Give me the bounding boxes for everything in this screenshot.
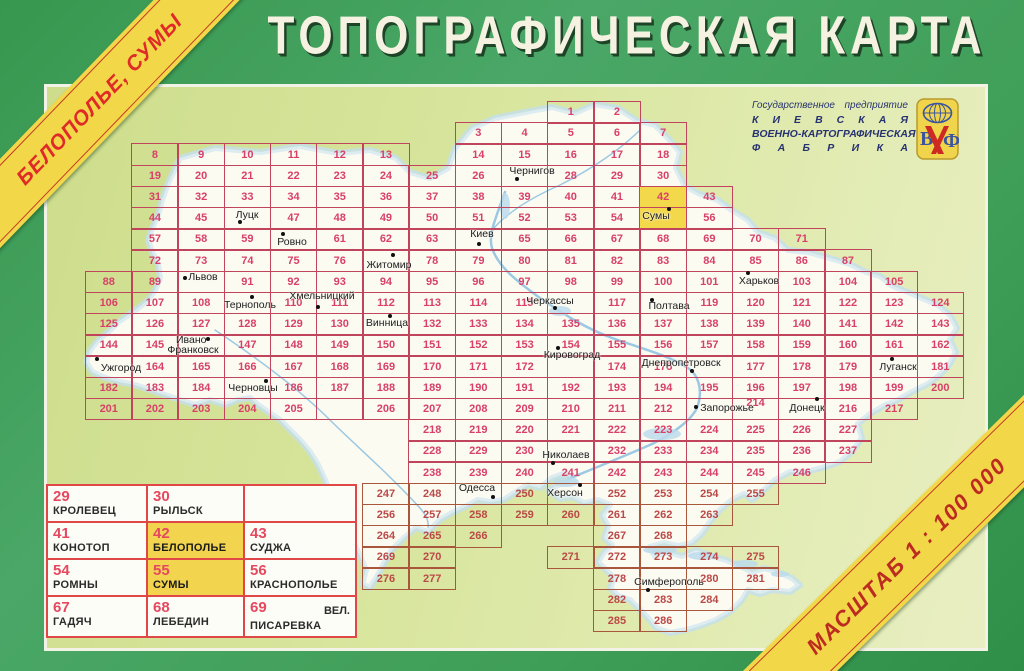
city-dot	[515, 177, 519, 181]
sheet-cell-11: 11	[270, 143, 318, 166]
sheet-cell-59: 59	[224, 228, 272, 251]
sheet-cell-242: 242	[593, 461, 641, 484]
sheet-cell-50: 50	[408, 207, 456, 230]
sheet-cell-49: 49	[362, 207, 410, 230]
sheet-cell-236: 236	[778, 440, 826, 463]
sheet-cell-113: 113	[408, 292, 456, 315]
sheet-cell-245: 245	[732, 461, 780, 484]
sheet-cell-264: 264	[362, 525, 410, 548]
legend-cell-41: 41КОНОТОП	[47, 522, 147, 559]
sheet-cell-74: 74	[224, 249, 272, 272]
sheet-cell-61: 61	[316, 228, 364, 251]
city-dot	[578, 483, 582, 487]
sheet-cell-270: 270	[408, 546, 456, 569]
sheet-cell-235: 235	[732, 440, 780, 463]
city-label: Херсон	[547, 488, 583, 498]
sheet-cell-194: 194	[639, 377, 687, 400]
sheet-cell-286: 286	[639, 610, 687, 633]
sheet-cell-275: 275	[732, 546, 780, 569]
city-dot	[250, 295, 254, 299]
sheet-cell-157: 157	[686, 334, 734, 357]
sheet-cell-208: 208	[455, 398, 503, 421]
sheet-cell-234: 234	[686, 440, 734, 463]
sheet-cell-empty	[316, 398, 364, 421]
sheet-cell-228: 228	[408, 440, 456, 463]
sheet-cell-198: 198	[824, 377, 872, 400]
sheet-cell-201: 201	[85, 398, 133, 421]
sheet-cell-276: 276	[362, 567, 410, 590]
sheet-cell-177: 177	[732, 355, 780, 378]
city-label: Киев	[470, 229, 493, 239]
sheet-cell-203: 203	[177, 398, 225, 421]
sheet-cell-143: 143	[917, 313, 965, 336]
sheet-cell-31: 31	[131, 186, 179, 209]
sheet-cell-7: 7	[639, 122, 687, 145]
sheet-cell-261: 261	[593, 504, 641, 527]
sheet-cell-103: 103	[778, 271, 826, 294]
sheet-cell-6: 6	[593, 122, 641, 145]
sheet-cell-58: 58	[177, 228, 225, 251]
sheet-cell-138: 138	[686, 313, 734, 336]
sheet-cell-253: 253	[639, 483, 687, 506]
sheet-cell-256: 256	[362, 504, 410, 527]
sheet-cell-204: 204	[224, 398, 272, 421]
sheet-cell-237: 237	[824, 440, 872, 463]
city-label: Львов	[188, 272, 217, 282]
sheet-cell-72: 72	[131, 249, 179, 272]
sheet-cell-29: 29	[593, 165, 641, 188]
city-label: Ровно	[277, 237, 307, 247]
sheet-cell-191: 191	[501, 377, 549, 400]
sheet-cell-100: 100	[639, 271, 687, 294]
sheet-cell-167: 167	[270, 355, 318, 378]
sheet-cell-99: 99	[593, 271, 641, 294]
sheet-cell-188: 188	[362, 377, 410, 400]
sheet-cell-119: 119	[686, 292, 734, 315]
sheet-cell-223: 223	[639, 419, 687, 442]
sheet-cell-238: 238	[408, 461, 456, 484]
sheet-cell-63: 63	[408, 228, 456, 251]
sheet-cell-105: 105	[870, 271, 918, 294]
map-cover-page: 1234567891011121314151617181920212223242…	[0, 0, 1024, 671]
sheet-cell-137: 137	[639, 313, 687, 336]
sheet-cell-151: 151	[408, 334, 456, 357]
city-dot	[650, 298, 654, 302]
sheet-cell-248: 248	[408, 483, 456, 506]
city-label: Хмельницкий	[289, 291, 354, 301]
city-dot	[388, 314, 392, 318]
publisher-line-2: К И Е В С К А Я	[752, 113, 908, 127]
sheet-cell-284: 284	[686, 589, 734, 612]
sheet-cell-97: 97	[501, 271, 549, 294]
sheet-cell-123: 123	[870, 292, 918, 315]
sheet-cell-23: 23	[316, 165, 364, 188]
sheet-cell-12: 12	[316, 143, 364, 166]
sheet-cell-179: 179	[824, 355, 872, 378]
city-label: Ивано- Франковск	[167, 335, 218, 355]
legend-cell-68: 68ЛЕБЕДИН	[147, 596, 244, 637]
sheet-cell-104: 104	[824, 271, 872, 294]
sheet-cell-134: 134	[501, 313, 549, 336]
sheet-cell-132: 132	[408, 313, 456, 336]
sheet-cell-156: 156	[639, 334, 687, 357]
sheet-cell-259: 259	[501, 504, 549, 527]
sheet-cell-133: 133	[455, 313, 503, 336]
sheet-cell-153: 153	[501, 334, 549, 357]
sheet-cell-36: 36	[362, 186, 410, 209]
sheet-cell-205: 205	[270, 398, 318, 421]
publisher-block: Государственное предприятие К И Е В С К …	[752, 99, 908, 155]
sheet-cell-217: 217	[870, 398, 918, 421]
city-label: Тернополь	[224, 300, 276, 310]
sheet-cell-4: 4	[501, 122, 549, 145]
sheet-cell-24: 24	[362, 165, 410, 188]
sheet-cell-268: 268	[639, 525, 687, 548]
sheet-cell-216: 216	[824, 398, 872, 421]
sheet-cell-112: 112	[362, 292, 410, 315]
sheet-cell-35: 35	[316, 186, 364, 209]
sheet-cell-258: 258	[455, 504, 503, 527]
sheet-cell-32: 32	[177, 186, 225, 209]
sheet-cell-161: 161	[870, 334, 918, 357]
sheet-cell-3: 3	[455, 122, 503, 145]
factory-logo-icon: В Ф	[916, 98, 959, 160]
sheet-cell-246: 246	[778, 461, 826, 484]
city-label: Днепропетровск	[641, 358, 720, 368]
sheet-cell-108: 108	[177, 292, 225, 315]
city-dot	[553, 306, 557, 310]
sheet-cell-54: 54	[593, 207, 641, 230]
sheet-cell-10: 10	[224, 143, 272, 166]
city-label: Винница	[366, 318, 408, 328]
sheet-cell-47: 47	[270, 207, 318, 230]
sheet-cell-91: 91	[224, 271, 272, 294]
sheet-cell-43: 43	[686, 186, 734, 209]
sheet-cell-266: 266	[455, 525, 503, 548]
city-label: Николаев	[542, 450, 589, 460]
city-label: Полтава	[648, 301, 689, 311]
sheet-cell-244: 244	[686, 461, 734, 484]
sheet-cell-252: 252	[593, 483, 641, 506]
sheet-cell-224: 224	[686, 419, 734, 442]
sheet-cell-37: 37	[408, 186, 456, 209]
sheet-cell-125: 125	[85, 313, 133, 336]
sheet-cell-210: 210	[547, 398, 595, 421]
sheet-cell-124: 124	[917, 292, 965, 315]
sheet-cell-187: 187	[316, 377, 364, 400]
sheet-cell-66: 66	[547, 228, 595, 251]
legend-cell-69: 69ВЕЛ.ПИСАРЕВКА	[244, 596, 356, 637]
city-dot	[391, 253, 395, 257]
city-label: Кировоград	[544, 350, 601, 360]
sheet-cell-169: 169	[362, 355, 410, 378]
sheet-cell-1: 1	[547, 101, 595, 124]
sheet-cell-144: 144	[85, 334, 133, 357]
sheet-cell-218: 218	[408, 419, 456, 442]
sheet-cell-52: 52	[501, 207, 549, 230]
sheet-cell-17: 17	[593, 143, 641, 166]
sheet-cell-239: 239	[455, 461, 503, 484]
sheet-cell-206: 206	[362, 398, 410, 421]
city-label: Ужгород	[101, 363, 141, 373]
sheet-cell-86: 86	[778, 249, 826, 272]
sheet-cell-44: 44	[131, 207, 179, 230]
sheet-cell-255: 255	[732, 483, 780, 506]
sheet-cell-85: 85	[732, 249, 780, 272]
sheet-cell-56: 56	[686, 207, 734, 230]
sheet-cell-171: 171	[455, 355, 503, 378]
sheet-cell-183: 183	[131, 377, 179, 400]
city-label: Одесса	[459, 483, 495, 493]
city-dot	[746, 271, 750, 275]
sheet-cell-274: 274	[686, 546, 734, 569]
sheet-cell-212: 212	[639, 398, 687, 421]
sheet-cell-260: 260	[547, 504, 595, 527]
city-dot	[667, 207, 671, 211]
sheet-cell-207: 207	[408, 398, 456, 421]
sheet-cell-39: 39	[501, 186, 549, 209]
sheet-cell-241: 241	[547, 461, 595, 484]
sheet-cell-142: 142	[870, 313, 918, 336]
sheet-cell-73: 73	[177, 249, 225, 272]
sheet-cell-114: 114	[455, 292, 503, 315]
sheet-cell-22: 22	[270, 165, 318, 188]
sheet-cell-197: 197	[778, 377, 826, 400]
sheet-cell-271: 271	[547, 546, 595, 569]
sheet-cell-45: 45	[177, 207, 225, 230]
sheet-cell-9: 9	[177, 143, 225, 166]
city-dot	[694, 405, 698, 409]
sheet-cell-158: 158	[732, 334, 780, 357]
sheet-cell-199: 199	[870, 377, 918, 400]
sheet-cell-62: 62	[362, 228, 410, 251]
city-label: Житомир	[366, 260, 411, 270]
sheet-cell-193: 193	[593, 377, 641, 400]
sheet-cell-263: 263	[686, 504, 734, 527]
sheet-cell-136: 136	[593, 313, 641, 336]
sheet-cell-269: 269	[362, 546, 410, 569]
sheet-cell-165: 165	[177, 355, 225, 378]
sheet-cell-79: 79	[455, 249, 503, 272]
city-label: Запорожье	[700, 403, 754, 413]
sheet-cell-94: 94	[362, 271, 410, 294]
sheet-cell-172: 172	[501, 355, 549, 378]
city-dot	[890, 357, 894, 361]
sheet-cell-226: 226	[778, 419, 826, 442]
sheet-cell-148: 148	[270, 334, 318, 357]
city-dot	[477, 242, 481, 246]
sheet-cell-107: 107	[131, 292, 179, 315]
sheet-cell-209: 209	[501, 398, 549, 421]
sheet-cell-18: 18	[639, 143, 687, 166]
publisher-line-1: Государственное предприятие	[752, 99, 908, 113]
city-dot	[551, 461, 555, 465]
sheet-cell-25: 25	[408, 165, 456, 188]
city-dot	[646, 588, 650, 592]
sheet-cell-225: 225	[732, 419, 780, 442]
city-label: Черновцы	[228, 383, 277, 393]
sheet-cell-139: 139	[732, 313, 780, 336]
sheet-cell-281: 281	[732, 567, 780, 590]
sheet-cell-87: 87	[824, 249, 872, 272]
city-dot	[206, 337, 210, 341]
sheet-cell-101: 101	[686, 271, 734, 294]
sheet-cell-232: 232	[593, 440, 641, 463]
sheet-cell-250: 250	[501, 483, 549, 506]
city-label: Сумы	[642, 211, 669, 221]
city-label: Чернигов	[509, 166, 554, 176]
sheet-cell-82: 82	[593, 249, 641, 272]
sheet-cell-221: 221	[547, 419, 595, 442]
city-dot	[264, 379, 268, 383]
sheet-cell-147: 147	[224, 334, 272, 357]
city-dot	[491, 495, 495, 499]
sheet-cell-65: 65	[501, 228, 549, 251]
sheet-cell-51: 51	[455, 207, 503, 230]
city-dot	[316, 305, 320, 309]
sheet-cell-53: 53	[547, 207, 595, 230]
sheet-cell-89: 89	[131, 271, 179, 294]
sheet-cell-181: 181	[917, 355, 965, 378]
sheet-cell-257: 257	[408, 504, 456, 527]
sheet-cell-162: 162	[917, 334, 965, 357]
sheet-cell-240: 240	[501, 461, 549, 484]
sheet-cell-272: 272	[593, 546, 641, 569]
sheet-cell-38: 38	[455, 186, 503, 209]
city-dot	[238, 220, 242, 224]
city-dot	[183, 276, 187, 280]
legend-cell-56: 56КРАСНОПОЛЬЕ	[244, 559, 356, 596]
sheet-cell-285: 285	[593, 610, 641, 633]
sheet-cell-2: 2	[593, 101, 641, 124]
sheet-cell-184: 184	[177, 377, 225, 400]
sheet-cell-196: 196	[732, 377, 780, 400]
sheet-cell-120: 120	[732, 292, 780, 315]
sheet-cell-34: 34	[270, 186, 318, 209]
sheet-cell-135: 135	[547, 313, 595, 336]
sheet-cell-220: 220	[501, 419, 549, 442]
sheet-cell-20: 20	[177, 165, 225, 188]
legend-cell-42: 42БЕЛОПОЛЬЕ	[147, 522, 244, 559]
sheet-cell-229: 229	[455, 440, 503, 463]
sheet-cell-96: 96	[455, 271, 503, 294]
sheet-cell-68: 68	[639, 228, 687, 251]
sheet-cell-152: 152	[455, 334, 503, 357]
sheet-cell-48: 48	[316, 207, 364, 230]
sheet-cell-273: 273	[639, 546, 687, 569]
sheet-cell-202: 202	[131, 398, 179, 421]
city-label: Луцк	[236, 210, 259, 220]
sheet-cell-170: 170	[408, 355, 456, 378]
sheet-cell-70: 70	[732, 228, 780, 251]
sheet-cell-182: 182	[85, 377, 133, 400]
sheet-cell-98: 98	[547, 271, 595, 294]
sheet-cell-150: 150	[362, 334, 410, 357]
sheet-cell-189: 189	[408, 377, 456, 400]
sheet-cell-262: 262	[639, 504, 687, 527]
legend-cell-empty	[244, 485, 356, 522]
sheet-cell-117: 117	[593, 292, 641, 315]
sheet-cell-277: 277	[408, 567, 456, 590]
sheet-cell-76: 76	[316, 249, 364, 272]
sheet-cell-230: 230	[501, 440, 549, 463]
sheet-cell-69: 69	[686, 228, 734, 251]
sheet-cell-149: 149	[316, 334, 364, 357]
city-dot	[95, 357, 99, 361]
sheet-cell-129: 129	[270, 313, 318, 336]
sheet-cell-41: 41	[593, 186, 641, 209]
sheet-cell-227: 227	[824, 419, 872, 442]
sheet-cell-127: 127	[177, 313, 225, 336]
publisher-line-3: ВОЕННО-КАРТОГРАФИЧЕСКАЯ	[752, 127, 908, 141]
sheet-cell-8: 8	[131, 143, 179, 166]
sheet-cell-88: 88	[85, 271, 133, 294]
legend-cell-55: 55СУМЫ	[147, 559, 244, 596]
sheet-cell-140: 140	[778, 313, 826, 336]
sheet-cell-19: 19	[131, 165, 179, 188]
sheet-cell-195: 195	[686, 377, 734, 400]
city-label: Симферополь	[634, 577, 704, 587]
sheet-cell-67: 67	[593, 228, 641, 251]
city-dot	[815, 397, 819, 401]
sheet-cell-178: 178	[778, 355, 826, 378]
sheet-cell-222: 222	[593, 419, 641, 442]
sheet-cell-57: 57	[131, 228, 179, 251]
sheet-cell-130: 130	[316, 313, 364, 336]
sheet-cell-78: 78	[408, 249, 456, 272]
sheet-cell-159: 159	[778, 334, 826, 357]
sheet-cell-42: 42	[639, 186, 687, 209]
sheet-cell-106: 106	[85, 292, 133, 315]
sheet-cell-84: 84	[686, 249, 734, 272]
sheet-cell-30: 30	[639, 165, 687, 188]
sheet-cell-190: 190	[455, 377, 503, 400]
sheet-cell-141: 141	[824, 313, 872, 336]
sheet-cell-80: 80	[501, 249, 549, 272]
sheet-cell-122: 122	[824, 292, 872, 315]
sheet-cell-13: 13	[362, 143, 410, 166]
sheet-cell-16: 16	[547, 143, 595, 166]
sheet-cell-265: 265	[408, 525, 456, 548]
city-label: Донецк	[789, 403, 824, 413]
sheet-cell-211: 211	[593, 398, 641, 421]
legend-cell-29: 29КРОЛЕВЕЦ	[47, 485, 147, 522]
city-dot	[281, 232, 285, 236]
city-label: Черкассы	[526, 296, 573, 306]
sheet-cell-219: 219	[455, 419, 503, 442]
sheet-cell-26: 26	[455, 165, 503, 188]
sheet-cell-128: 128	[224, 313, 272, 336]
sheet-cell-5: 5	[547, 122, 595, 145]
sheet-cell-126: 126	[131, 313, 179, 336]
sheet-cell-15: 15	[501, 143, 549, 166]
sheet-cell-21: 21	[224, 165, 272, 188]
sheet-cell-166: 166	[224, 355, 272, 378]
sheet-cell-81: 81	[547, 249, 595, 272]
sheet-cell-247: 247	[362, 483, 410, 506]
legend-cell-54: 54РОМНЫ	[47, 559, 147, 596]
city-label: Харьков	[739, 276, 779, 286]
sheet-cell-243: 243	[639, 461, 687, 484]
sheet-cell-283: 283	[639, 589, 687, 612]
sheet-cell-33: 33	[224, 186, 272, 209]
sheet-cell-200: 200	[917, 377, 965, 400]
sheet-cell-282: 282	[593, 589, 641, 612]
sheet-cell-121: 121	[778, 292, 826, 315]
sheet-cell-83: 83	[639, 249, 687, 272]
sheet-cell-192: 192	[547, 377, 595, 400]
sheet-cell-160: 160	[824, 334, 872, 357]
